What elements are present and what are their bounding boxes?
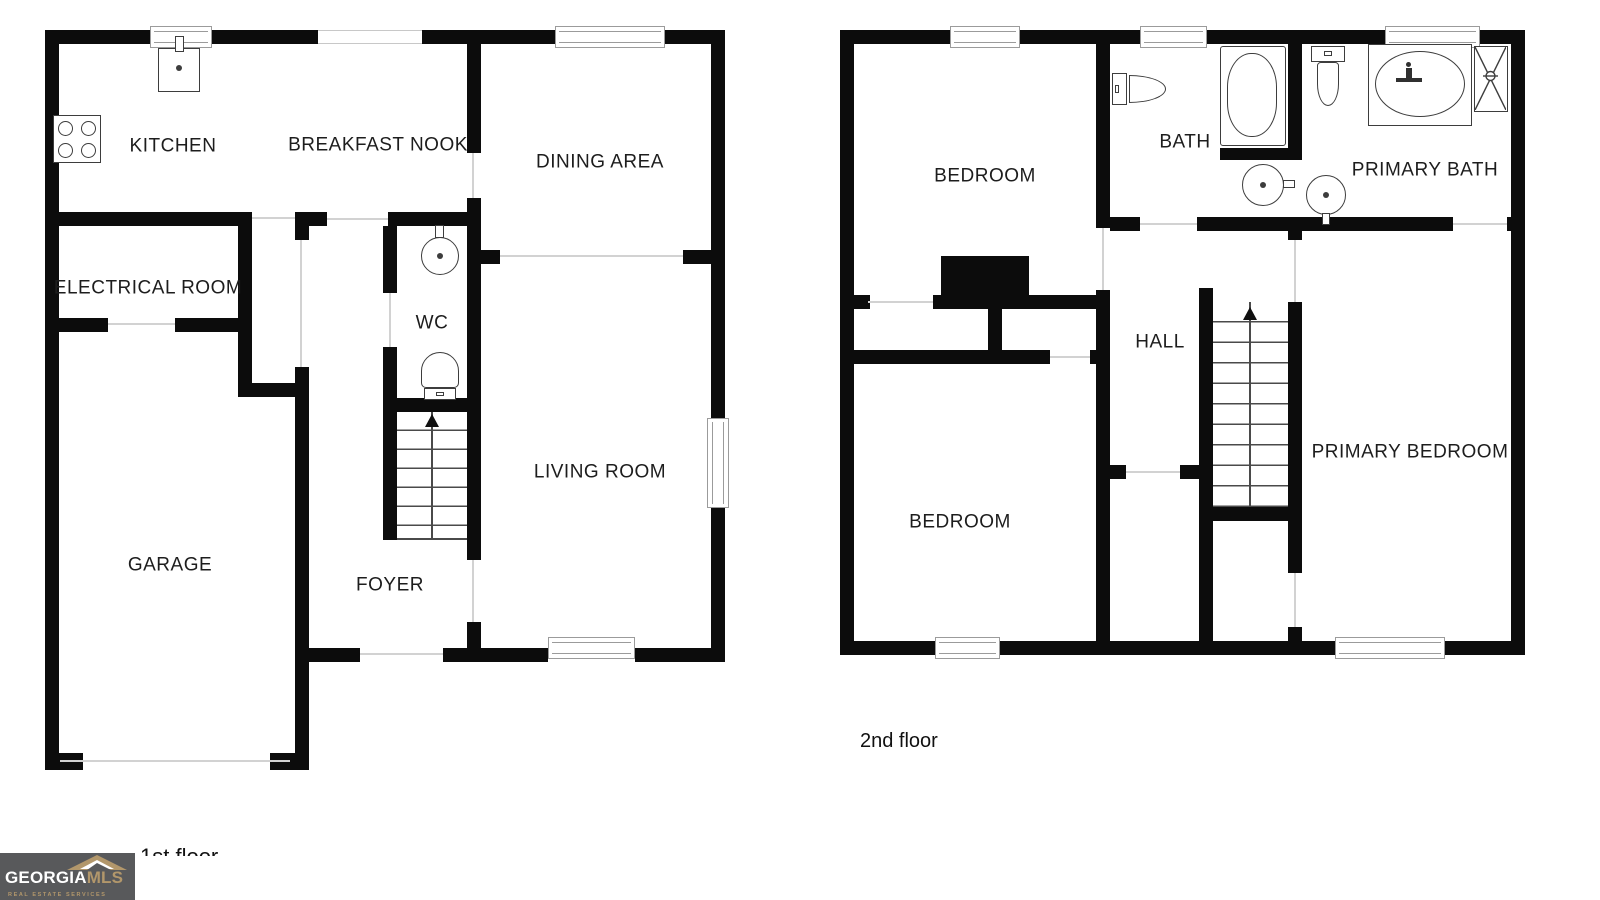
window: [935, 637, 1000, 659]
stairs-center-line: [431, 412, 433, 540]
window: [548, 637, 635, 659]
wall: [1199, 288, 1213, 641]
door-opening: [1050, 356, 1090, 358]
door-opening: [472, 560, 474, 622]
room-label-foyer: FOYER: [356, 576, 424, 595]
wall: [1445, 641, 1525, 655]
wall: [1207, 30, 1385, 44]
room-label-bath: BATH: [1159, 133, 1210, 152]
wall: [1507, 217, 1525, 231]
window: [707, 418, 729, 508]
shower-x-icon: [1475, 47, 1506, 110]
drain-icon: [176, 65, 182, 71]
stove-burner-icon: [58, 143, 73, 158]
wall: [1096, 290, 1110, 641]
wall: [1110, 217, 1140, 231]
window: [1335, 637, 1445, 659]
room-label-breakfast-nook: BREAKFAST NOOK: [288, 136, 468, 155]
wall: [45, 212, 252, 226]
wall: [840, 30, 854, 655]
wall: [443, 648, 548, 662]
bathtub-basin-icon: [1227, 53, 1277, 137]
drain-icon: [1323, 192, 1329, 198]
wall: [1220, 148, 1302, 160]
stairs-up-arrow-icon: [1243, 307, 1257, 320]
door-opening: [500, 255, 683, 257]
door-opening: [360, 653, 443, 655]
room-label-dining-area: DINING AREA: [536, 153, 664, 172]
wall: [1090, 350, 1110, 364]
faucet-icon: [1322, 213, 1330, 225]
door-opening: [868, 301, 933, 303]
georgia-mls-logo: GEORGIAMLS REAL ESTATE SERVICES: [0, 853, 135, 900]
faucet-icon: [435, 225, 444, 238]
stairs-up-arrow-icon: [425, 414, 439, 427]
door-opening: [389, 293, 391, 347]
faucet-icon: [1396, 78, 1422, 82]
toilet-icon: [1317, 62, 1339, 106]
wall: [1288, 302, 1302, 573]
stove-burner-icon: [81, 121, 96, 136]
toilet-icon: [421, 352, 459, 388]
wall: [854, 350, 1050, 364]
wall: [840, 30, 950, 44]
room-label-hall: HALL: [1135, 333, 1185, 352]
wall: [295, 226, 309, 240]
door-opening: [1294, 573, 1296, 627]
bathtub-basin-icon: [1375, 51, 1465, 117]
room-label-garage: GARAGE: [128, 556, 212, 575]
logo-wordmark: GEORGIAMLS: [5, 868, 123, 888]
wall: [1096, 44, 1110, 228]
wall: [988, 309, 1002, 350]
wall: [711, 508, 725, 662]
door-opening: [1140, 223, 1197, 225]
wall: [308, 648, 360, 662]
faucet-icon: [1406, 68, 1412, 78]
wall: [422, 30, 555, 44]
wall: [295, 397, 309, 753]
door-opening: [327, 218, 388, 220]
wall: [683, 250, 725, 264]
toilet-button-icon: [1324, 51, 1332, 56]
wall: [383, 398, 481, 412]
window: [555, 26, 665, 48]
room-label-wc: WC: [416, 314, 449, 333]
window: [950, 26, 1020, 48]
wall: [1213, 507, 1288, 521]
room-label-primary-bedroom: PRIMARY BEDROOM: [1312, 443, 1509, 462]
wall: [1110, 465, 1126, 479]
wall: [1000, 641, 1335, 655]
wall: [383, 347, 397, 540]
stairs-edge-line: [397, 538, 467, 540]
room-label-bedroom-bottom: BEDROOM: [909, 513, 1011, 532]
window: [1140, 26, 1207, 48]
wall: [1288, 44, 1302, 148]
door-opening: [252, 217, 295, 219]
wall: [1511, 30, 1525, 655]
logo-text-georgia: GEORGIA: [5, 868, 87, 887]
room-label-primary-bath: PRIMARY BATH: [1352, 161, 1498, 180]
wall: [238, 383, 309, 397]
faucet-icon: [1406, 62, 1411, 67]
stairs-center-line: [1249, 302, 1251, 507]
drain-icon: [437, 253, 443, 259]
wall: [45, 318, 108, 332]
door-opening: [108, 323, 175, 325]
wall: [635, 648, 725, 662]
wall: [467, 622, 481, 648]
wall-opening: [318, 30, 422, 44]
logo-tagline: REAL ESTATE SERVICES: [8, 892, 107, 898]
door-opening: [1126, 471, 1180, 473]
door-opening: [300, 240, 302, 367]
wall: [840, 641, 935, 655]
faucet-icon: [1283, 180, 1295, 188]
stove-burner-icon: [81, 143, 96, 158]
toilet-icon: [1129, 75, 1166, 103]
wall: [212, 30, 318, 44]
wall: [238, 226, 252, 397]
door-opening: [1453, 223, 1507, 225]
door-opening: [1294, 240, 1296, 302]
garage-door-opening: [60, 760, 290, 762]
door-opening: [472, 153, 474, 198]
wall: [711, 30, 725, 418]
floor-plan-image: KITCHEN BREAKFAST NOOK DINING AREA ELECT…: [0, 0, 1600, 900]
wall: [1020, 30, 1140, 44]
wall: [481, 250, 500, 264]
wall: [467, 198, 481, 560]
drain-icon: [1260, 182, 1266, 188]
room-label-bedroom-top: BEDROOM: [934, 167, 1036, 186]
wall: [933, 295, 1096, 309]
logo-text-mls: MLS: [87, 868, 123, 887]
faucet-icon: [175, 36, 184, 52]
toilet-button-icon: [1115, 85, 1119, 93]
room-label-living-room: LIVING ROOM: [534, 463, 666, 482]
wall: [467, 44, 481, 153]
shower-icon: [1474, 46, 1508, 112]
wall: [1288, 627, 1302, 641]
stove-burner-icon: [58, 121, 73, 136]
chimney: [941, 256, 1029, 295]
wall: [383, 226, 397, 293]
toilet-button-icon: [436, 392, 444, 396]
door-opening: [1102, 228, 1104, 290]
room-label-kitchen: KITCHEN: [130, 137, 217, 156]
wall: [295, 212, 327, 226]
floor2-caption: 2nd floor: [860, 730, 938, 753]
room-label-electrical-room: ELECTRICAL ROOM: [54, 279, 242, 298]
wall: [45, 30, 150, 44]
wall: [175, 318, 252, 332]
